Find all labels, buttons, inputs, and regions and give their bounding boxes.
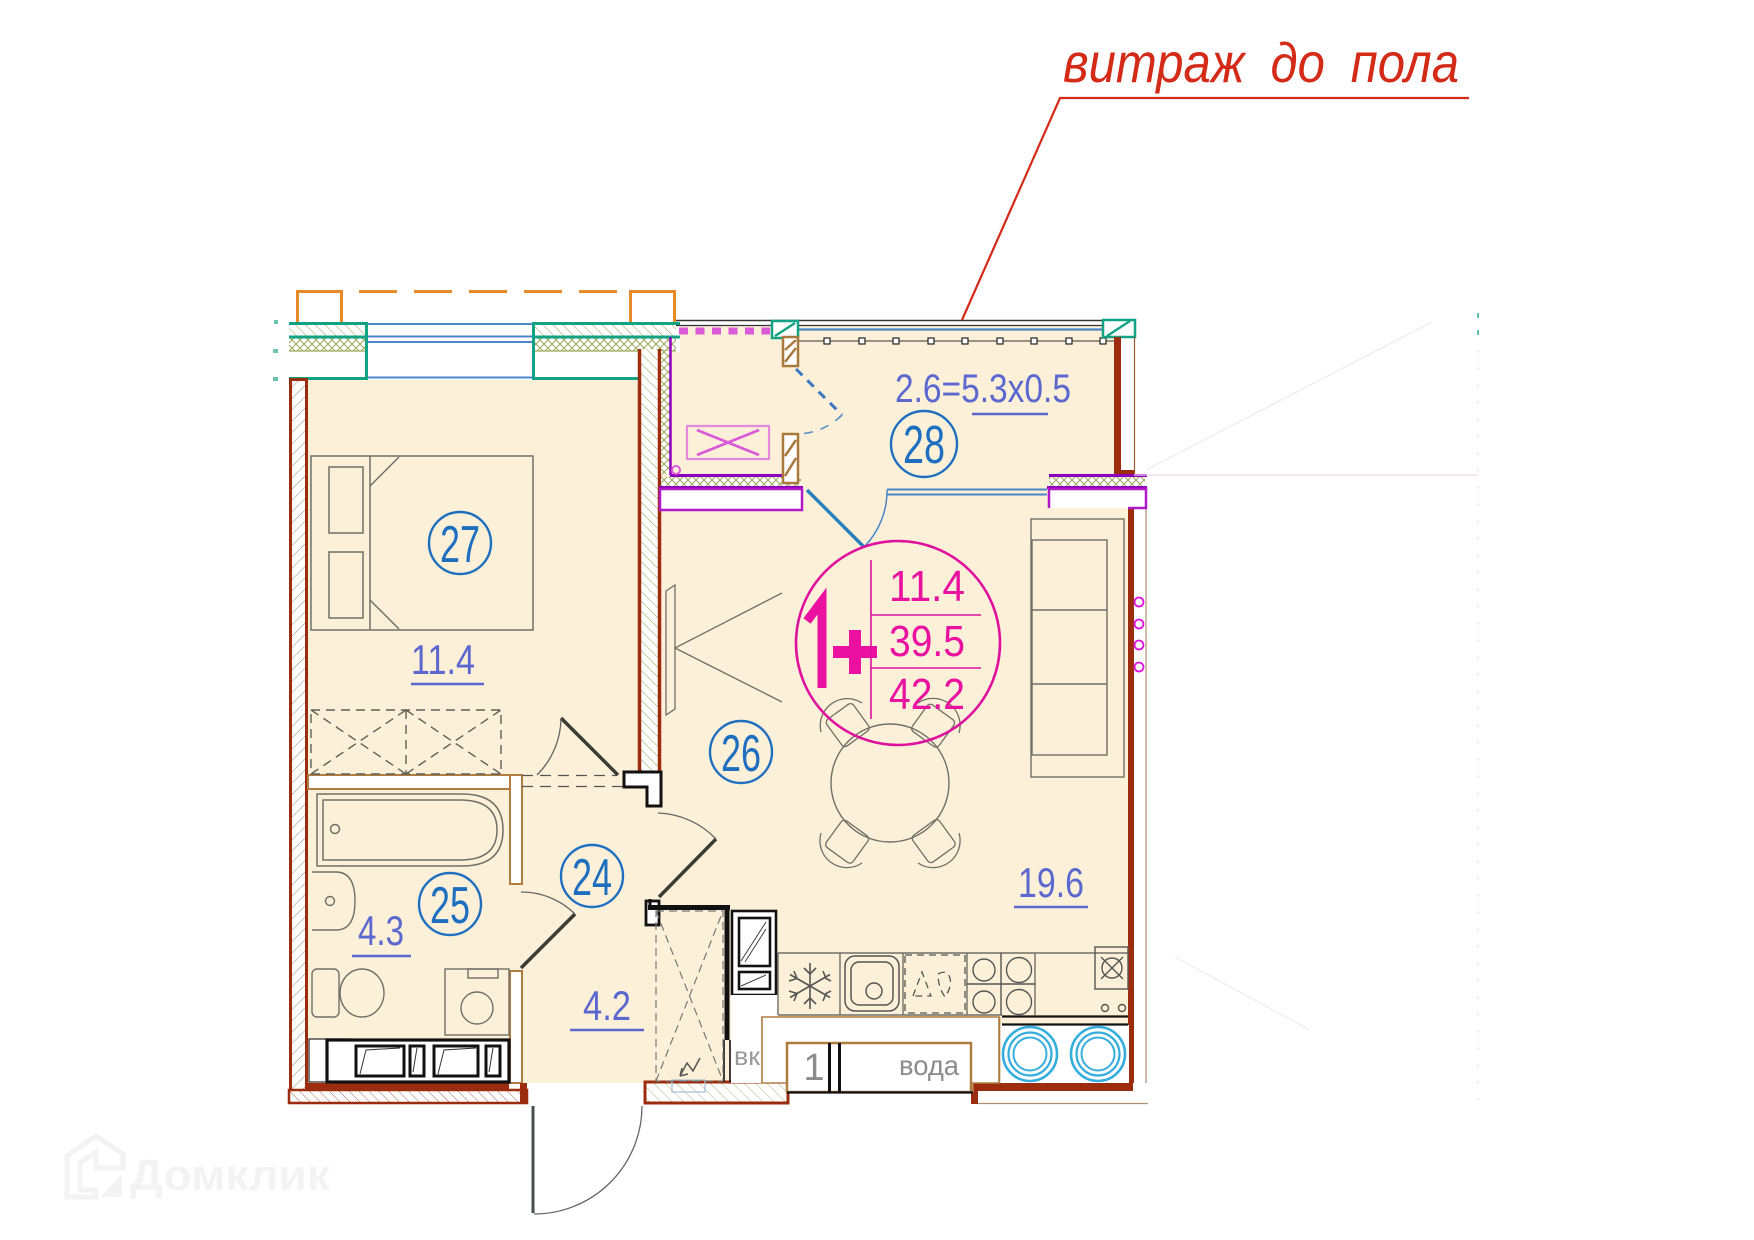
svg-text:вода: вода [899, 1050, 959, 1081]
svg-text:1: 1 [803, 1047, 824, 1089]
svg-text:вк: вк [734, 1043, 761, 1071]
svg-text:11.4: 11.4 [889, 562, 965, 611]
svg-text:11.4: 11.4 [411, 636, 475, 683]
svg-text:25: 25 [430, 877, 470, 935]
svg-text:Домклик: Домклик [130, 1151, 331, 1200]
svg-text:27: 27 [440, 516, 480, 574]
svg-text:4.2: 4.2 [583, 982, 631, 1029]
svg-text:42.2: 42.2 [889, 670, 965, 719]
svg-text:28: 28 [903, 415, 945, 475]
svg-text:39.5: 39.5 [889, 617, 965, 666]
svg-text:26: 26 [721, 725, 761, 783]
svg-text:витраж до пола: витраж до пола [1063, 31, 1459, 94]
svg-text:24: 24 [572, 849, 612, 907]
svg-text:2.6=5.3x0.5: 2.6=5.3x0.5 [895, 367, 1071, 411]
svg-text:4.3: 4.3 [358, 907, 404, 954]
svg-text:19.6: 19.6 [1018, 859, 1084, 906]
